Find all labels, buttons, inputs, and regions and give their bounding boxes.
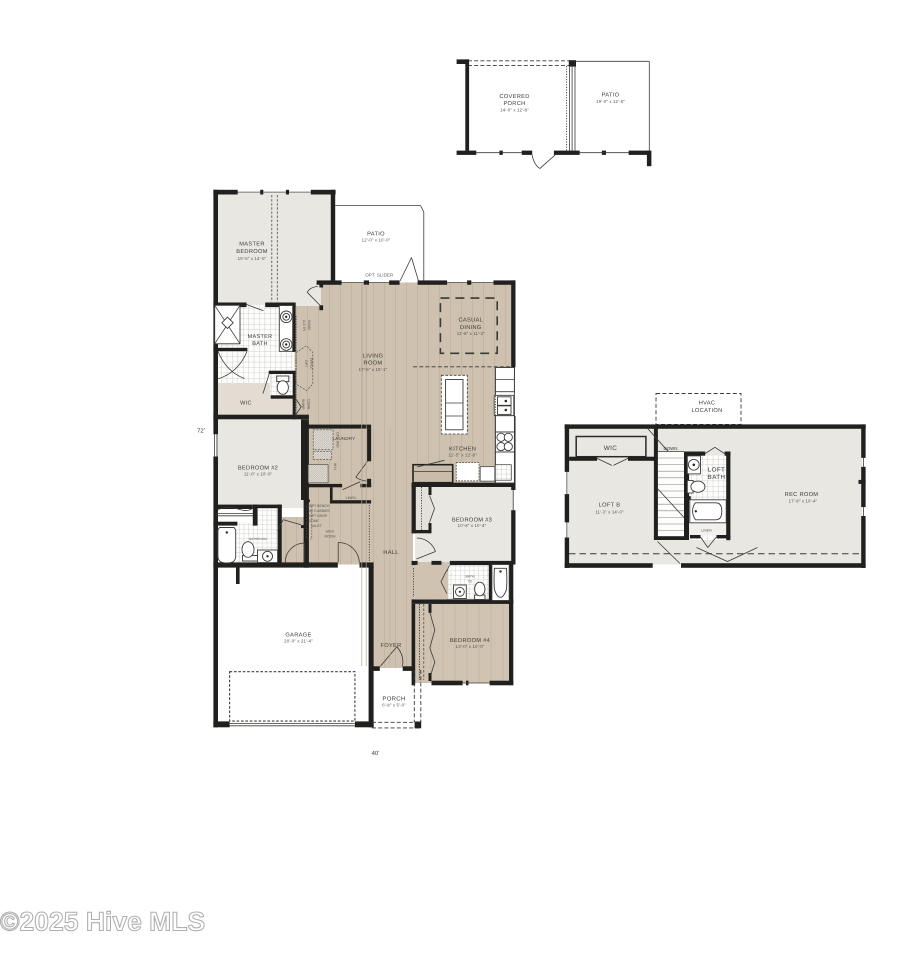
svg-text:WIC: WIC [604, 445, 618, 452]
svg-text:OPT. SLIDER: OPT. SLIDER [365, 273, 393, 278]
svg-text:BATH: BATH [252, 341, 267, 347]
svg-text:17'-8" x 10'-4": 17'-8" x 10'-4" [789, 498, 818, 503]
svg-text:OPT BENCH: OPT BENCH [309, 504, 330, 508]
svg-text:REC ROOM: REC ROOM [785, 492, 819, 498]
svg-text:OPT DROP: OPT DROP [309, 514, 328, 518]
svg-text:PORCH: PORCH [503, 101, 525, 107]
svg-text:BATH: BATH [708, 474, 726, 481]
svg-text:LOFT: LOFT [708, 467, 725, 474]
svg-text:LOCATION: LOCATION [691, 408, 722, 414]
svg-text:PORCH: PORCH [382, 695, 405, 702]
svg-text:A-3 TR: A-3 TR [302, 320, 306, 331]
svg-text:LOFT B: LOFT B [599, 503, 621, 509]
svg-text:LIVING: LIVING [363, 353, 383, 359]
svg-text:HVAC: HVAC [699, 401, 716, 407]
svg-text:11'-3" x 14'-0": 11'-3" x 14'-0" [595, 509, 624, 514]
svg-text:20'-0" x 21'-4": 20'-0" x 21'-4" [284, 639, 313, 644]
svg-text:W/ CUBBIES: W/ CUBBIES [309, 509, 330, 513]
svg-text:11'-5" x 12'-8": 11'-5" x 12'-8" [449, 452, 478, 457]
svg-text:17'-6" x 15'-1": 17'-6" x 15'-1" [359, 367, 388, 372]
svg-text:10'-8" x 10'-4": 10'-8" x 10'-4" [458, 523, 487, 528]
svg-text:ROOM: ROOM [325, 535, 336, 539]
svg-text:FOYER: FOYER [380, 643, 401, 649]
svg-text:#2: #2 [468, 579, 472, 583]
svg-text:PATIO: PATIO [602, 93, 620, 99]
svg-text:COVERED: COVERED [499, 94, 529, 100]
svg-text:MUD: MUD [326, 529, 334, 533]
svg-text:ZONE: ZONE [309, 519, 319, 523]
svg-text:54X80: 54X80 [307, 320, 311, 330]
svg-text:BEDROOM: BEDROOM [236, 249, 268, 255]
svg-text:CASUAL: CASUAL [459, 318, 484, 324]
svg-text:BATH: BATH [465, 575, 475, 579]
svg-text:15'-6" x 14'-6": 15'-6" x 14'-6" [238, 256, 267, 261]
svg-text:MASTER: MASTER [239, 242, 265, 248]
svg-text:PATIO: PATIO [367, 231, 385, 237]
svg-text:OPT: OPT [304, 360, 308, 368]
svg-text:6'-8" x 5'-0": 6'-8" x 5'-0" [382, 702, 406, 707]
svg-text:LAUNDRY: LAUNDRY [332, 436, 355, 441]
svg-text:HALL: HALL [383, 550, 398, 556]
svg-text:LINEN: LINEN [346, 496, 357, 500]
svg-text:LINEN: LINEN [701, 529, 712, 533]
svg-text:SHWR: SHWR [301, 399, 305, 410]
svg-text:MASTER: MASTER [248, 334, 273, 340]
svg-text:WIC: WIC [240, 401, 252, 407]
svg-text:11'-0" x 10'-0": 11'-0" x 10'-0" [244, 471, 273, 476]
svg-text:13'-0" x 10'-0": 13'-0" x 10'-0" [456, 644, 485, 649]
svg-text:14'-0" x 12'-8": 14'-0" x 12'-8" [500, 108, 529, 113]
svg-text:COMB: COMB [307, 399, 311, 410]
svg-text:72': 72' [197, 428, 205, 435]
svg-text:12'-0" x 10'-0": 12'-0" x 10'-0" [362, 238, 391, 243]
svg-text:11'-8" x 11'-2": 11'-8" x 11'-2" [457, 331, 485, 336]
svg-text:FRPLC: FRPLC [309, 358, 313, 370]
svg-text:40': 40' [372, 750, 380, 757]
svg-text:GARAGE: GARAGE [285, 632, 311, 638]
svg-text:19'-0" x 12'-8": 19'-0" x 12'-8" [596, 99, 625, 104]
svg-text:W.H.: W.H. [333, 463, 337, 471]
svg-text:©2025 Hive MLS: ©2025 Hive MLS [0, 907, 205, 937]
svg-text:BATHROOM: BATHROOM [249, 537, 267, 541]
svg-text:ROOM: ROOM [364, 361, 383, 367]
svg-text:VALET: VALET [311, 524, 323, 528]
